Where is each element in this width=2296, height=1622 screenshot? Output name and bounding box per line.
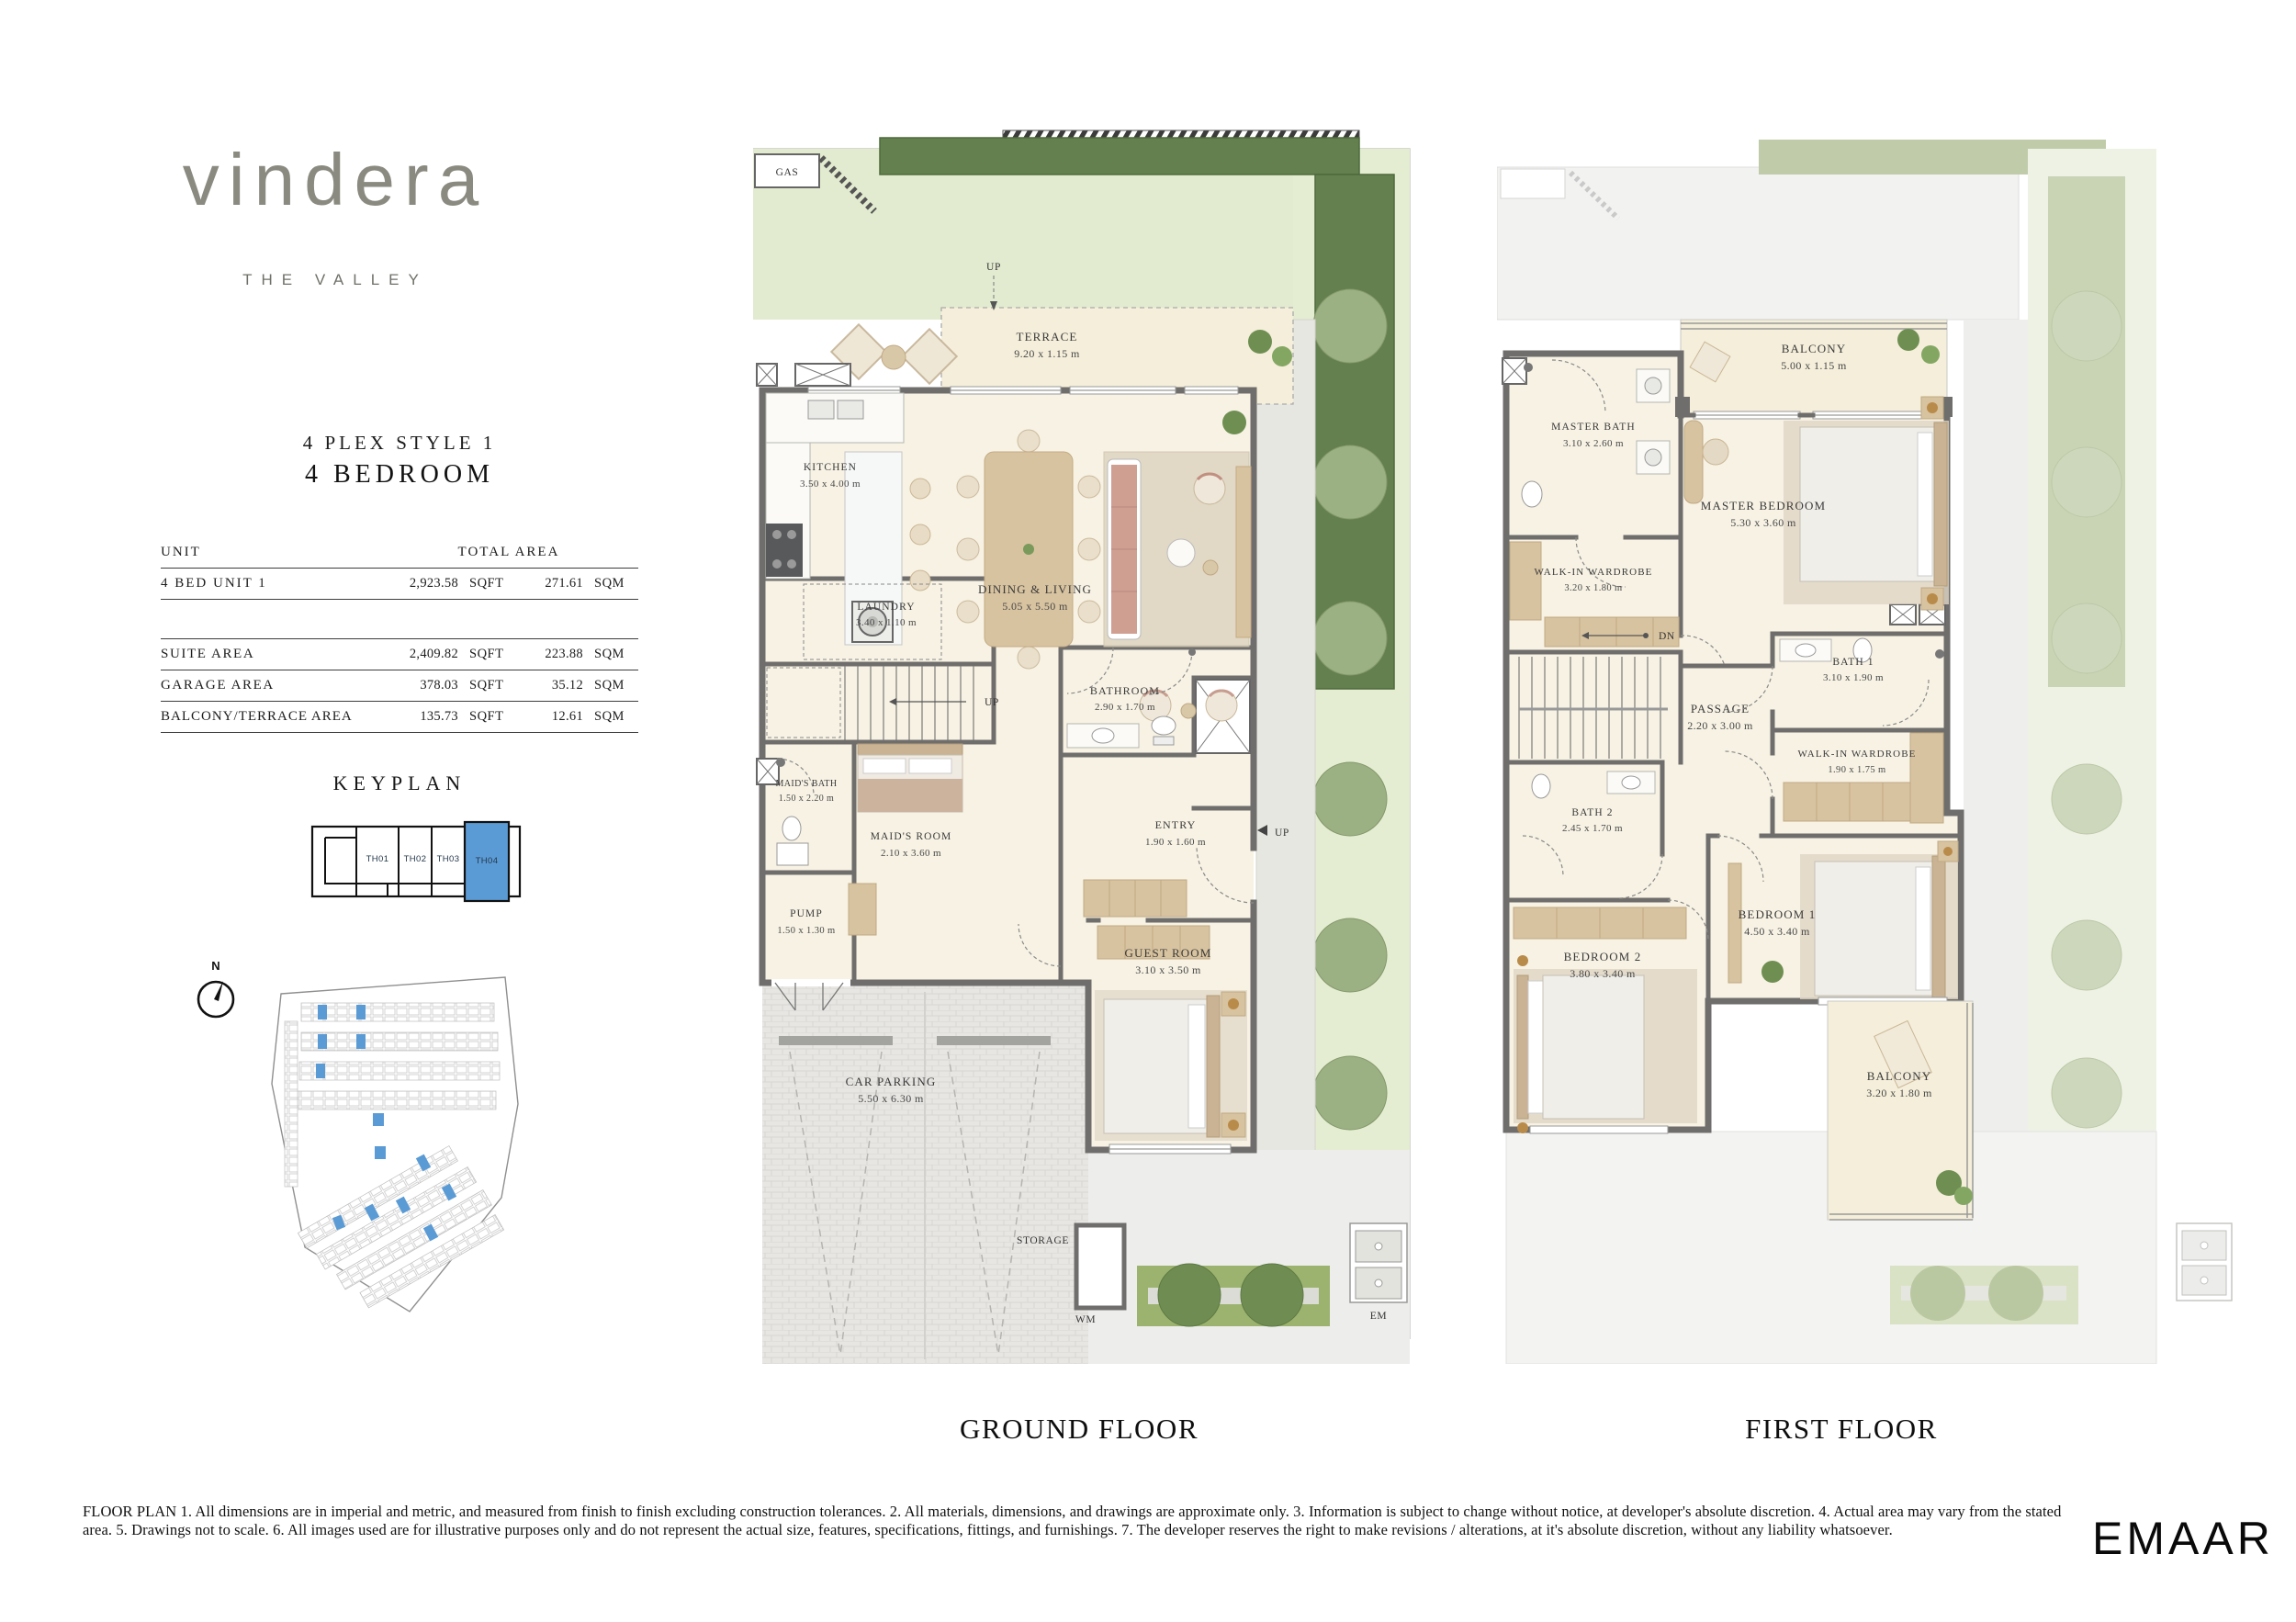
balcony-area-sqft: 135.73 <box>379 709 464 725</box>
bathroom-dims: 2.90 x 1.70 m <box>1095 702 1155 713</box>
garage-area-sqm: 35.12 <box>517 678 589 693</box>
hedge-top <box>880 138 1359 175</box>
wm-label: WM <box>1075 1314 1096 1325</box>
emaar-logo: EMAAR <box>2092 1512 2274 1565</box>
master-bath-name: MASTER BATH <box>1551 422 1636 433</box>
keyplan-cell-th04: TH04 <box>476 856 499 866</box>
maids-bath-dims: 1.50 x 2.20 m <box>779 794 834 804</box>
meter-boxes-faded <box>2177 1223 2232 1301</box>
entry-name: ENTRY <box>1155 818 1197 831</box>
terrace-name: TERRACE <box>1017 330 1078 344</box>
pump-dims: 1.50 x 1.30 m <box>777 926 835 936</box>
dining-dims: 5.05 x 5.50 m <box>1002 600 1068 613</box>
balcony-area-sqft-unit: SQFT <box>464 709 517 725</box>
unit-style-title: 4 PLEX STYLE 1 <box>161 432 638 455</box>
front-planter <box>1137 1264 1330 1326</box>
bath1-dims: 3.10 x 1.90 m <box>1823 672 1884 683</box>
north-label: N <box>211 959 219 973</box>
balcony-area-sqm: 12.61 <box>517 709 589 725</box>
unit-title-block: 4 PLEX STYLE 1 4 BEDROOM <box>161 432 638 490</box>
up-stairs-label: UP <box>985 697 999 708</box>
wiw1-name: WALK-IN WARDROBE <box>1798 749 1917 760</box>
suite-area-sqft: 2,409.82 <box>379 647 464 662</box>
master-bedroom-dims: 5.30 x 3.60 m <box>1730 516 1796 529</box>
unit-row-sqm-unit: SQM <box>589 576 638 591</box>
bath2-name: BATH 2 <box>1571 807 1613 818</box>
ghost-top <box>1497 167 2019 320</box>
dining-name: DINING & LIVING <box>978 582 1092 596</box>
bedroom2-name: BEDROOM 2 <box>1564 950 1642 963</box>
guest-dims: 3.10 x 3.50 m <box>1135 963 1201 976</box>
dn-label: DN <box>1659 631 1675 642</box>
bedroom2-furniture <box>1514 900 1708 1133</box>
laundry-name: LAUNDRY <box>857 602 915 613</box>
site-plan <box>264 966 531 1324</box>
unit-row-label: 4 BED UNIT 1 <box>161 576 379 591</box>
gas-label: GAS <box>776 167 799 178</box>
footer-disclaimer: FLOOR PLAN 1. All dimensions are in impe… <box>83 1503 2066 1540</box>
ghost-gas-box <box>1501 169 1565 198</box>
kitchen-dims: 3.50 x 4.00 m <box>800 479 861 490</box>
compass-needle-icon <box>214 981 223 1001</box>
passage-name: PASSAGE <box>1691 702 1750 715</box>
ground-floor-plan: EM GAS TERRACE 9.20 x 1.15 m UP CAR PARK… <box>753 129 1451 1364</box>
bedroom2-dims: 3.80 x 3.40 m <box>1570 967 1636 980</box>
table-row: 4 BED UNIT 1 2,923.58 SQFT 271.61 SQM <box>161 569 638 599</box>
bathroom-name: BATHROOM <box>1090 684 1160 697</box>
passage-dims: 2.20 x 3.00 m <box>1687 719 1753 732</box>
keyplan-diagram: TH01 TH02 TH03 TH04 <box>303 810 542 916</box>
window-band-guest <box>1109 1144 1231 1154</box>
master-bath-dims: 3.10 x 2.60 m <box>1563 438 1624 449</box>
unit-bedrooms-title: 4 BEDROOM <box>161 460 638 490</box>
keyplan-title: KEYPLAN <box>161 772 638 795</box>
site-boundary <box>272 977 518 1312</box>
north-compass: N <box>186 955 245 1032</box>
unit-row-sqft-unit: SQFT <box>464 576 517 591</box>
maids-room-dims: 2.10 x 3.60 m <box>881 848 941 859</box>
table-row: BALCONY/TERRACE AREA 135.73 SQFT 12.61 S… <box>161 702 638 732</box>
bedroom1-name: BEDROOM 1 <box>1739 907 1817 921</box>
suite-area-sqm-unit: SQM <box>589 647 638 662</box>
balcony-top-dims: 5.00 x 1.15 m <box>1781 359 1847 372</box>
garage-area-sqft-unit: SQFT <box>464 678 517 693</box>
balcony-bottom-name: BALCONY <box>1867 1069 1932 1083</box>
area-col-total: TOTAL AREA <box>379 545 638 560</box>
table-row: GARAGE AREA 378.03 SQFT 35.12 SQM <box>161 670 638 701</box>
keyplan-cell-th03: TH03 <box>437 854 460 864</box>
storage-box <box>1076 1225 1124 1308</box>
storage-label: STORAGE <box>1017 1235 1069 1246</box>
suite-area-sqm: 223.88 <box>517 647 589 662</box>
area-table: UNIT TOTAL AREA 4 BED UNIT 1 2,923.58 SQ… <box>161 537 638 733</box>
wiw1-dims: 1.90 x 1.75 m <box>1828 765 1885 775</box>
area-col-unit: UNIT <box>161 545 379 560</box>
first-floor-plan: BALCONY 5.00 x 1.15 m MASTER BATH 3.10 x… <box>1497 129 2250 1364</box>
brand-wordmark: vindera <box>129 138 542 222</box>
bath1-name: BATH 1 <box>1832 657 1874 668</box>
pump-name: PUMP <box>790 908 823 919</box>
wiw-master-name: WALK-IN WARDROBE <box>1535 567 1653 578</box>
parking-name: CAR PARKING <box>846 1075 937 1088</box>
keyplan-cell-th01: TH01 <box>366 854 389 864</box>
up-entry-label: UP <box>1275 828 1289 839</box>
electric-meter-boxes <box>1350 1223 1407 1302</box>
bath2-dims: 2.45 x 1.70 m <box>1562 823 1623 834</box>
suite-area-label: SUITE AREA <box>161 647 379 662</box>
maids-bath-name: MAID'S BATH <box>775 779 837 789</box>
unit-row-sqft: 2,923.58 <box>379 576 464 591</box>
laundry-dims: 3.40 x 1.10 m <box>856 617 917 628</box>
side-path <box>1256 320 1315 1266</box>
master-bedroom-name: MASTER BEDROOM <box>1701 499 1826 513</box>
area-table-header: UNIT TOTAL AREA <box>161 537 638 568</box>
em-label: EM <box>1370 1311 1387 1322</box>
floor-plan-page: vindera THE VALLEY 4 PLEX STYLE 1 4 BEDR… <box>0 0 2296 1622</box>
unit-row-sqm: 271.61 <box>517 576 589 591</box>
brand-tagline: THE VALLEY <box>129 271 542 289</box>
terrace-dims: 9.20 x 1.15 m <box>1014 347 1080 360</box>
balcony-area-sqm-unit: SQM <box>589 709 638 725</box>
balcony-bottom-dims: 3.20 x 1.80 m <box>1866 1087 1932 1099</box>
maids-room-name: MAID'S ROOM <box>871 831 952 842</box>
wiw-master-dims: 3.20 x 1.80 m <box>1564 583 1622 593</box>
keyplan-cell-th02: TH02 <box>404 854 427 864</box>
parking-dims: 5.50 x 6.30 m <box>858 1092 924 1105</box>
guest-name: GUEST ROOM <box>1125 946 1212 960</box>
table-rule <box>161 732 638 733</box>
garage-area-sqft: 378.03 <box>379 678 464 693</box>
entry-dims: 1.90 x 1.60 m <box>1145 837 1206 848</box>
table-row: SUITE AREA 2,409.82 SQFT 223.88 SQM <box>161 639 638 670</box>
first-floor-caption: FIRST FLOOR <box>1681 1413 2002 1446</box>
ground-floor-caption: GROUND FLOOR <box>918 1413 1240 1446</box>
garage-area-label: GARAGE AREA <box>161 678 379 693</box>
bedroom1-dims: 4.50 x 3.40 m <box>1744 925 1810 938</box>
balcony-area-label: BALCONY/TERRACE AREA <box>161 709 379 725</box>
kitchen-name: KITCHEN <box>804 462 857 473</box>
up-top-label: UP <box>986 262 1001 273</box>
planter-faded <box>1890 1266 2078 1324</box>
suite-area-sqft-unit: SQFT <box>464 647 517 662</box>
balcony-top-name: BALCONY <box>1782 342 1847 355</box>
garage-area-sqm-unit: SQM <box>589 678 638 693</box>
